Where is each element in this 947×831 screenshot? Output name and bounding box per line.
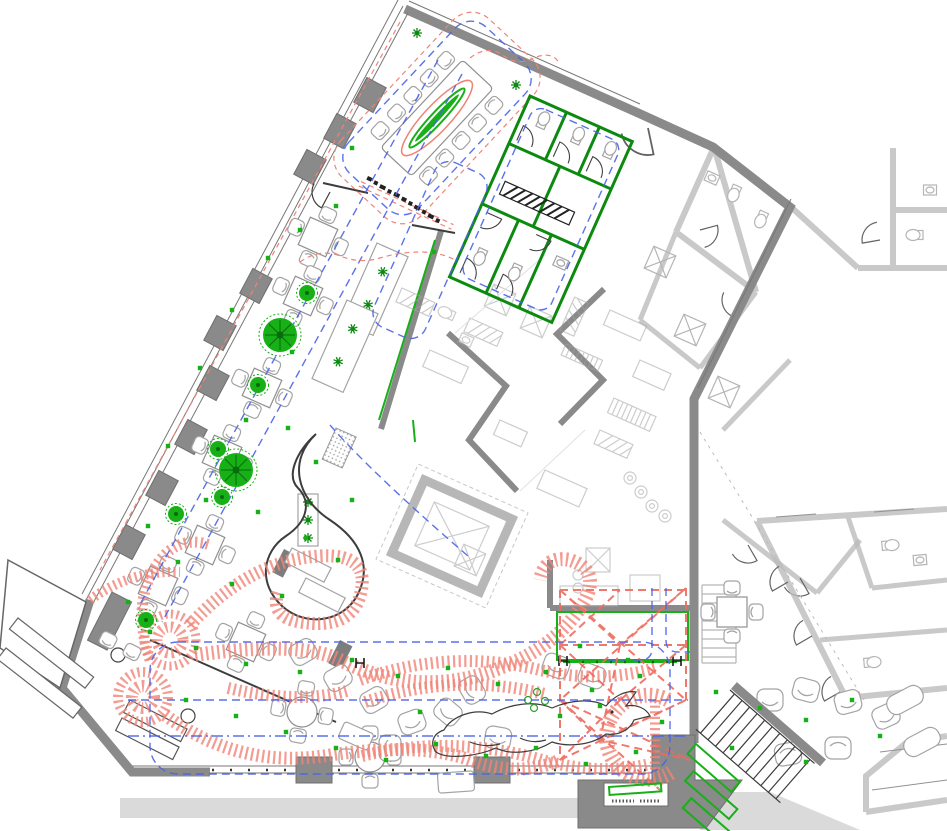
bar-counter bbox=[266, 428, 364, 619]
floor-plan-drawing: Restaurant ground floor plan with furnit… bbox=[0, 0, 947, 831]
pizza-oven bbox=[376, 464, 528, 608]
building-shell: structural walls glazed street facade wi… bbox=[0, 0, 791, 828]
meeting-room: illegible pen annotation along red guide bbox=[323, 2, 560, 235]
dining-area: tables, chairs, lounge seating bbox=[98, 196, 763, 788]
sidewalk bbox=[120, 792, 860, 830]
floor-plan-canvas: Restaurant ground floor plan with furnit… bbox=[0, 0, 947, 831]
pen-annotation: illegible pen annotation along red guide bbox=[359, 174, 457, 229]
banquette bbox=[312, 300, 378, 392]
